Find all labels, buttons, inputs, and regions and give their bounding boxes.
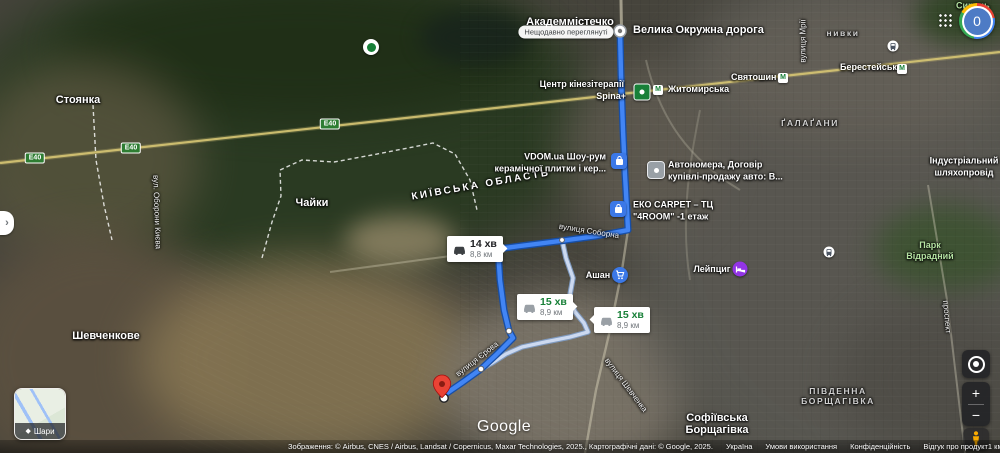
metro-m-icon[interactable]: М <box>653 85 663 95</box>
my-location-icon <box>968 356 985 373</box>
label-zhytomyrska[interactable]: Житомирська <box>668 84 729 96</box>
footer-link[interactable]: Україна <box>726 442 752 451</box>
label-route-start[interactable]: Велика Окружна дорога <box>633 24 764 36</box>
map-label[interactable]: Чайки <box>296 197 329 209</box>
map-label[interactable]: Стоянка <box>56 94 100 106</box>
map-label: вулиця Мрії <box>799 19 808 62</box>
metro-green-icon[interactable] <box>634 84 651 101</box>
route-time: 15 хв <box>617 310 644 322</box>
avatar-ring: 0 <box>962 6 993 37</box>
route-option-alt-2[interactable]: 15 хв 8,9 км <box>594 307 650 333</box>
map-label: проспект <box>941 300 953 334</box>
scale-label: 1 км <box>988 442 1000 451</box>
label-sviatoshyn[interactable]: Святошин <box>731 72 776 84</box>
route-distance: 8,9 км <box>617 322 644 331</box>
map-label[interactable]: Центр кінезітерапії <box>540 79 624 91</box>
footer-link[interactable]: Конфіденційність <box>850 442 910 451</box>
car-icon <box>600 315 613 326</box>
avatar-initial: 0 <box>964 8 991 35</box>
map-label[interactable]: Лейпциг <box>693 264 730 276</box>
route-distance: 8,8 км <box>470 251 497 260</box>
transit-white-icon[interactable] <box>888 41 899 52</box>
map-canvas[interactable]: АкадеммістечкоНещодавно переглянутіВелик… <box>0 0 1000 453</box>
map-labels-layer: АкадеммістечкоНещодавно переглянутіВелик… <box>0 0 1000 453</box>
map-label[interactable]: VDOM.ua Шоу-рум керамічної плитки і кер.… <box>494 151 606 174</box>
footer-link[interactable]: Відгук про продукт <box>923 442 988 451</box>
auto-gray-icon[interactable] <box>647 161 665 179</box>
route-time: 14 хв <box>470 239 497 251</box>
label-beresteiska[interactable]: Берестейська <box>840 62 902 74</box>
car-icon <box>523 302 536 313</box>
zoom-out-button[interactable]: − <box>962 405 990 426</box>
zoom-in-button[interactable]: + <box>962 383 990 404</box>
shop-blue-icon[interactable] <box>610 201 626 217</box>
shop-blue-icon[interactable] <box>611 153 627 169</box>
e40-road-badge: E40 <box>121 143 141 154</box>
map-label: нивки <box>826 28 859 38</box>
map-label: вулиця Шевченка <box>603 356 649 413</box>
route-time: 15 хв <box>540 297 567 309</box>
map-label: ПІВДЕННА БОРЩАГІВКА <box>801 386 875 406</box>
recently-viewed-badge: Нещодавно переглянуті <box>518 26 613 39</box>
map-label[interactable]: Шевченкове <box>72 330 139 342</box>
google-logo[interactable]: Google <box>477 418 531 436</box>
transit-white-icon[interactable] <box>824 247 835 258</box>
map-label: Парк Відрадний <box>906 240 953 263</box>
layers-icon: ◆ <box>25 428 30 435</box>
metro-m-icon[interactable]: М <box>897 64 907 74</box>
map-label: вул. Оборони Києва <box>151 175 163 249</box>
e40-road-badge: E40 <box>320 119 340 130</box>
attribution-bar: Зображення: © Airbus, CNES / Airbus, Lan… <box>0 440 1000 453</box>
cart-blue-icon[interactable] <box>612 267 628 283</box>
map-scale[interactable]: 1 км <box>988 442 1000 451</box>
route-option-alt-1[interactable]: 15 хв 8,9 км <box>517 294 573 320</box>
footer-link[interactable]: Умови використання <box>765 442 837 451</box>
map-label: ҐАЛАҐАНИ <box>781 118 839 128</box>
route-distance: 8,9 км <box>540 309 567 318</box>
map-attribution: Зображення: © Airbus, CNES / Airbus, Lan… <box>288 442 713 451</box>
label-ashan[interactable]: Ашан <box>586 270 610 282</box>
layers-button[interactable]: ◆ Шари <box>14 388 66 440</box>
map-label[interactable]: Spina+ <box>596 91 626 103</box>
my-location-button[interactable] <box>962 350 990 378</box>
map-label[interactable]: Індустріальний шляхопровід <box>930 155 999 178</box>
map-label[interactable]: Софіївська Борщагівка <box>686 412 749 436</box>
chevron-right-icon: › <box>5 217 9 229</box>
car-icon <box>453 244 466 255</box>
hotel-purple-icon[interactable] <box>733 262 748 277</box>
google-apps-grid-icon[interactable] <box>938 13 952 27</box>
map-label: вулиця Єрова <box>454 340 500 379</box>
e40-road-badge: E40 <box>25 153 45 164</box>
route-option-selected[interactable]: 14 хв 8,8 км <box>447 236 503 262</box>
map-label: вулиця Соборна <box>558 222 619 240</box>
layers-label: Шари <box>34 427 55 436</box>
map-label[interactable]: ЕКО CARPET – ТЦ "4ROOM" -1 етаж <box>633 199 713 222</box>
map-label[interactable]: Автономера, Договір купівлі-продажу авто… <box>668 159 783 182</box>
zoom-control: + − <box>962 382 990 426</box>
metro-m-icon[interactable]: М <box>778 73 788 83</box>
account-avatar[interactable]: 0 <box>959 3 995 39</box>
park-dot-icon[interactable] <box>363 39 379 55</box>
